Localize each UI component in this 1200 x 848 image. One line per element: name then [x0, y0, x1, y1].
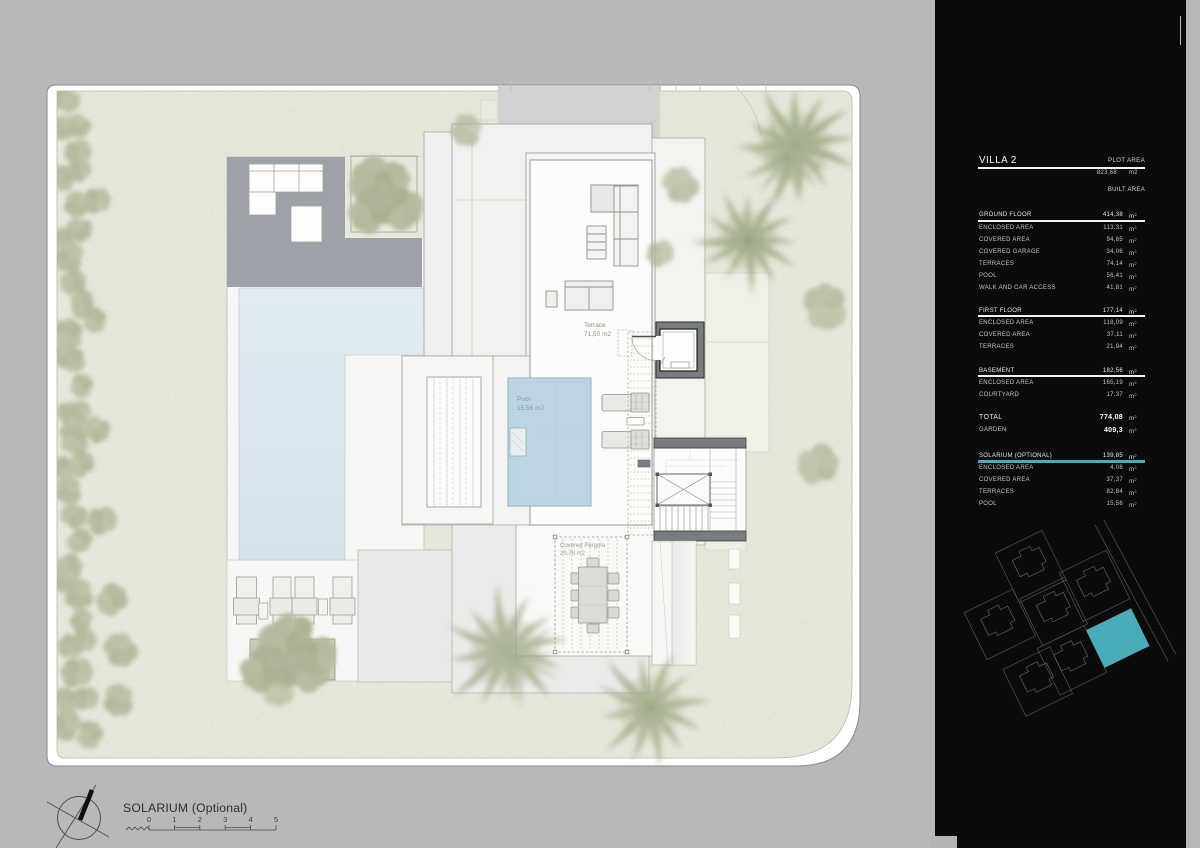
svg-text:15,56 m2: 15,56 m2	[517, 405, 544, 412]
svg-text:SOLARIUM (Optional): SOLARIUM (Optional)	[123, 801, 247, 815]
svg-text:Terrace: Terrace	[584, 322, 606, 329]
svg-text:5: 5	[274, 815, 278, 824]
svg-text:1: 1	[172, 815, 176, 824]
svg-text:Covered Pergola: Covered Pergola	[560, 543, 606, 549]
svg-text:Pool: Pool	[517, 396, 531, 403]
svg-text:20,78 m2: 20,78 m2	[560, 551, 586, 557]
svg-text:3: 3	[223, 815, 227, 824]
svg-text:2: 2	[198, 815, 202, 824]
svg-text:0: 0	[147, 815, 151, 824]
svg-text:71,50 m2: 71,50 m2	[584, 331, 611, 338]
svg-text:4: 4	[249, 815, 253, 824]
